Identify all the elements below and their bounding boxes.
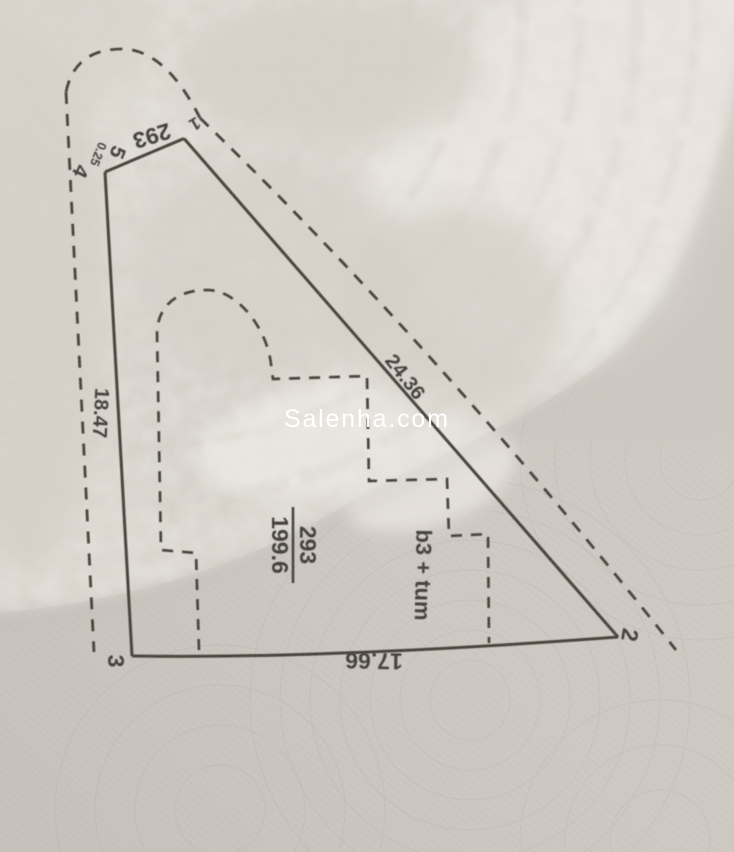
svg-text:Salenha.com: Salenha.com xyxy=(284,405,450,433)
